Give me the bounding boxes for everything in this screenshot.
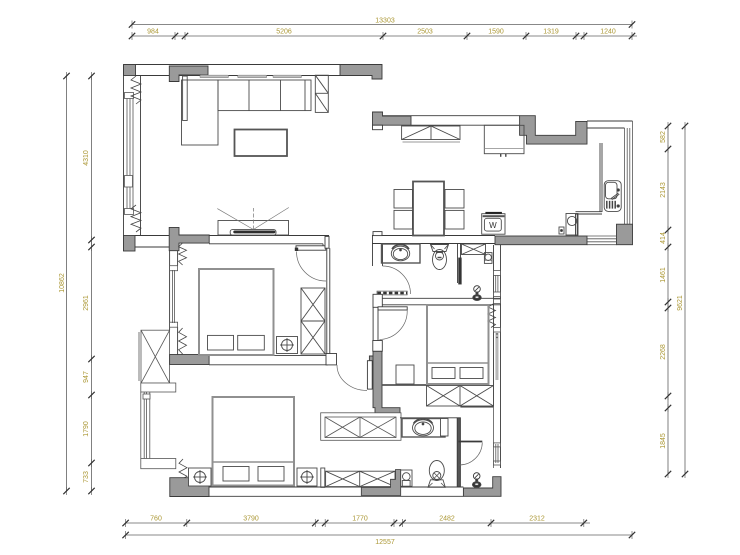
svg-text:9621: 9621: [677, 295, 684, 311]
svg-text:1790: 1790: [83, 421, 90, 437]
svg-text:13303: 13303: [375, 18, 395, 25]
svg-text:2143: 2143: [660, 182, 667, 198]
svg-text:2961: 2961: [83, 295, 90, 311]
svg-text:5206: 5206: [276, 29, 292, 36]
svg-text:1770: 1770: [352, 516, 368, 523]
svg-text:12557: 12557: [375, 539, 395, 546]
svg-text:2268: 2268: [660, 344, 667, 360]
svg-text:984: 984: [147, 29, 159, 36]
svg-text:1240: 1240: [600, 29, 616, 36]
svg-text:1845: 1845: [660, 433, 667, 449]
svg-text:2503: 2503: [417, 29, 433, 36]
svg-text:10862: 10862: [59, 273, 66, 293]
svg-text:947: 947: [83, 371, 90, 383]
svg-text:414: 414: [660, 232, 667, 244]
svg-text:1461: 1461: [660, 267, 667, 283]
svg-text:2482: 2482: [439, 516, 455, 523]
svg-text:3790: 3790: [243, 516, 259, 523]
svg-text:733: 733: [83, 471, 90, 483]
svg-text:1319: 1319: [543, 29, 559, 36]
svg-text:760: 760: [150, 516, 162, 523]
svg-text:1590: 1590: [488, 29, 504, 36]
svg-text:4310: 4310: [83, 150, 90, 166]
svg-text:2312: 2312: [529, 516, 545, 523]
svg-text:W: W: [489, 221, 497, 230]
svg-text:582: 582: [660, 131, 667, 143]
